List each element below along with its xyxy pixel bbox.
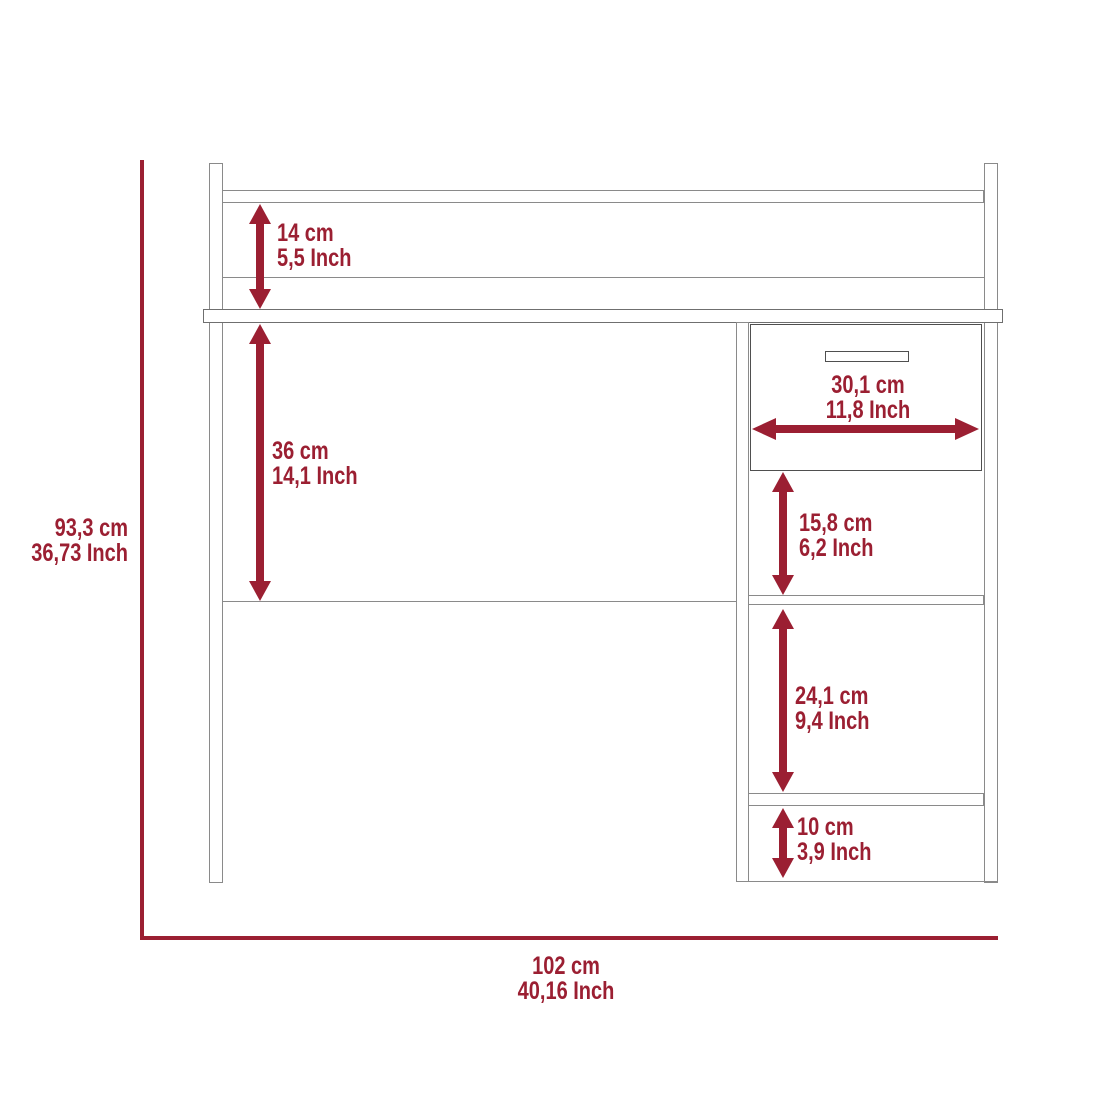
arrowhead-right-icon xyxy=(955,418,979,440)
pedestal-bottom-line xyxy=(736,881,998,882)
value-cm: 102 cm xyxy=(486,954,646,979)
value-inch: 3,9 Inch xyxy=(797,840,871,865)
arrow-upper-compartment-height xyxy=(772,472,794,595)
label-upper-compartment-height: 15,8 cm 6,2 Inch xyxy=(799,511,873,561)
value-cm: 15,8 cm xyxy=(799,511,873,536)
value-inch: 14,1 Inch xyxy=(272,464,358,489)
value-cm: 10 cm xyxy=(797,815,871,840)
label-lower-compartment-height: 10 cm 3,9 Inch xyxy=(797,815,871,865)
arrow-desktop-to-stretcher xyxy=(249,324,271,601)
label-overall-width: 102 cm 40,16 Inch xyxy=(486,954,646,1004)
arrow-shaft xyxy=(779,625,787,776)
arrowhead-down-icon xyxy=(249,581,271,601)
arrowhead-down-icon xyxy=(772,575,794,595)
arrow-lower-compartment-height xyxy=(772,808,794,878)
arrowhead-down-icon xyxy=(249,289,271,309)
left-stretcher-line xyxy=(222,601,737,602)
overall-height-axis-line xyxy=(140,160,144,940)
value-cm: 24,1 cm xyxy=(795,684,869,709)
value-cm: 36 cm xyxy=(272,439,358,464)
arrow-hutch-clearance-height xyxy=(249,204,271,309)
label-desktop-to-stretcher: 36 cm 14,1 Inch xyxy=(272,439,358,489)
right-leg xyxy=(984,163,998,883)
arrowhead-down-icon xyxy=(772,858,794,878)
dimension-diagram: 14 cm 5,5 Inch 36 cm 14,1 Inch 30,1 cm 1… xyxy=(0,0,1100,1100)
value-inch: 9,4 Inch xyxy=(795,709,869,734)
value-inch: 5,5 Inch xyxy=(277,246,351,271)
overall-width-axis-line xyxy=(140,936,998,940)
arrow-shaft xyxy=(256,220,264,293)
value-cm: 14 cm xyxy=(277,221,351,246)
hutch-back-rail-line xyxy=(222,277,984,278)
arrow-shaft xyxy=(768,425,963,433)
value-cm: 30,1 cm xyxy=(788,373,948,398)
value-inch: 40,16 Inch xyxy=(486,979,646,1004)
desktop xyxy=(203,309,1003,323)
label-middle-compartment-height: 24,1 cm 9,4 Inch xyxy=(795,684,869,734)
drawer-handle-slot xyxy=(825,351,909,362)
arrowhead-down-icon xyxy=(772,772,794,792)
value-inch: 11,8 Inch xyxy=(788,398,948,423)
left-leg xyxy=(209,163,223,883)
arrow-middle-compartment-height xyxy=(772,609,794,792)
value-inch: 36,73 Inch xyxy=(0,541,128,566)
label-hutch-clearance-height: 14 cm 5,5 Inch xyxy=(277,221,351,271)
value-cm: 93,3 cm xyxy=(0,516,128,541)
arrow-shaft xyxy=(256,340,264,585)
arrow-shaft xyxy=(779,824,787,862)
value-inch: 6,2 Inch xyxy=(799,536,873,561)
label-drawer-width: 30,1 cm 11,8 Inch xyxy=(788,373,948,423)
hutch-top-shelf xyxy=(222,190,984,203)
arrow-shaft xyxy=(779,488,787,579)
label-overall-height: 93,3 cm 36,73 Inch xyxy=(0,516,128,566)
pedestal-shelf-lower xyxy=(748,793,984,806)
pedestal-shelf-upper xyxy=(748,595,984,605)
